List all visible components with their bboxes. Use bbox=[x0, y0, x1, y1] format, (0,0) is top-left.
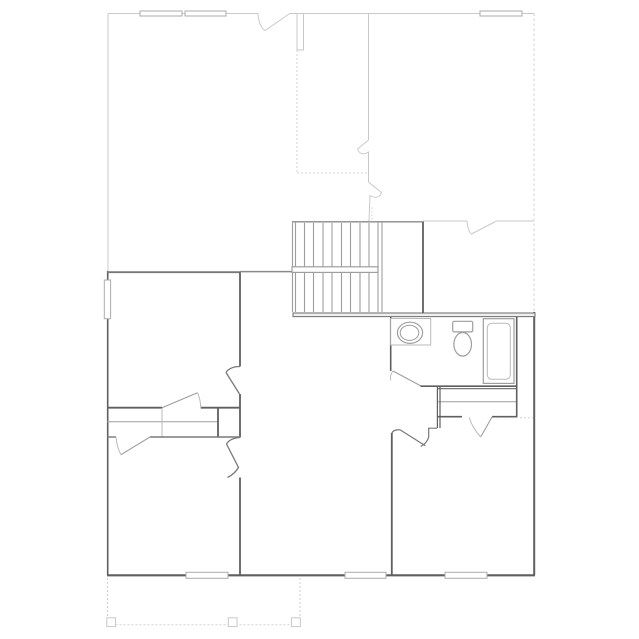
left-closet-door-arc bbox=[198, 393, 201, 408]
left-closet-door-leaf bbox=[162, 393, 198, 408]
bathtub-outer bbox=[483, 319, 514, 384]
window-top-2 bbox=[185, 11, 226, 16]
window-bottom-1 bbox=[186, 572, 228, 578]
porch-post-2 bbox=[228, 618, 237, 627]
stair-handrail bbox=[292, 267, 378, 273]
window-top-3 bbox=[480, 11, 522, 16]
bath-door-leaf bbox=[393, 371, 421, 386]
lower-closet-door-leaf bbox=[121, 437, 150, 455]
roof-break-mark-lower bbox=[369, 182, 382, 221]
bedroom-closet-door-arc bbox=[469, 418, 480, 438]
lower-closet-door-arc bbox=[116, 438, 121, 455]
window-bottom-2 bbox=[345, 572, 386, 578]
window-left-wall bbox=[104, 280, 110, 319]
bath-door-swing-arc bbox=[390, 371, 393, 381]
floor-plan-svg bbox=[0, 0, 639, 639]
toilet-bowl bbox=[454, 333, 472, 357]
roof-break-mark-upper bbox=[358, 140, 369, 182]
wall-band-bath-top bbox=[293, 313, 535, 317]
opening-mark-center-lower bbox=[227, 438, 241, 478]
toilet-tank bbox=[453, 321, 473, 332]
roof-opening-mark-221 bbox=[467, 221, 496, 234]
roof-opening-mark-top bbox=[258, 14, 289, 31]
window-bottom-3 bbox=[445, 572, 487, 578]
bedroom-closet-door-leaf bbox=[481, 417, 492, 437]
floor-plan-canvas bbox=[0, 0, 639, 639]
porch-post-3 bbox=[292, 618, 301, 627]
window-top-1 bbox=[140, 11, 182, 16]
chimney-outline bbox=[297, 14, 304, 51]
porch-post-1 bbox=[107, 618, 116, 627]
opening-mark-bedroom-entry bbox=[392, 428, 437, 446]
opening-mark-center-upper bbox=[226, 367, 240, 395]
